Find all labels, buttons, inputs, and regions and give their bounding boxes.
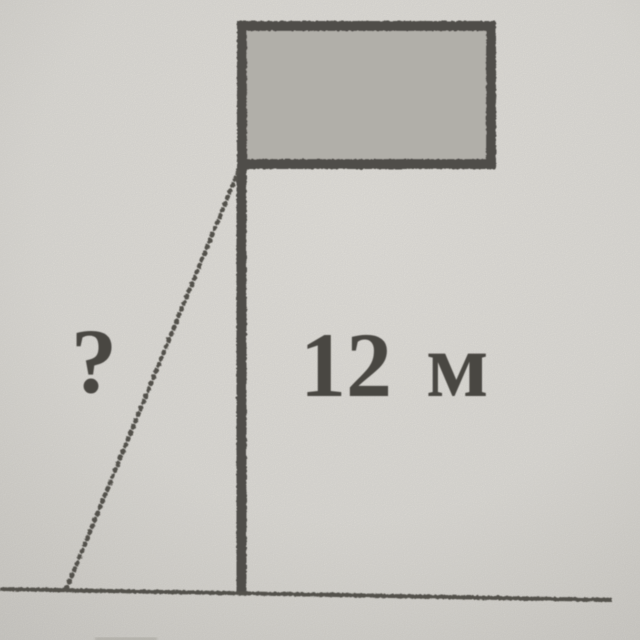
svg-text:?: ? [71,310,117,412]
